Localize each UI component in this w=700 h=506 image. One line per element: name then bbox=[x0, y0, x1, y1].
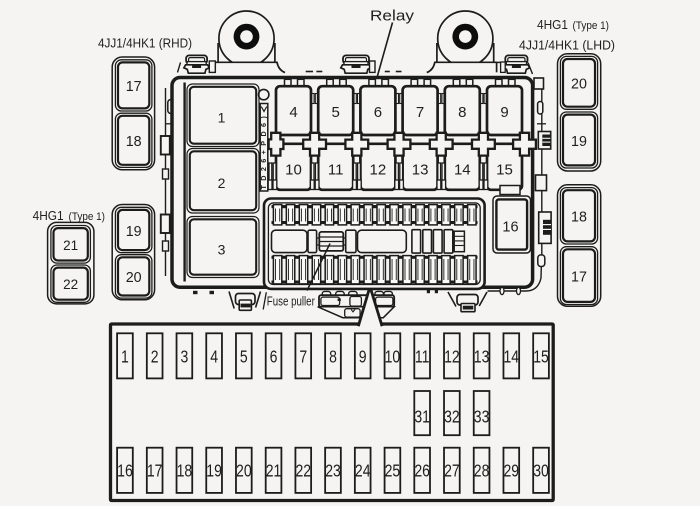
svg-text:13: 13 bbox=[474, 347, 490, 367]
svg-text:12: 12 bbox=[370, 161, 387, 178]
svg-text:14: 14 bbox=[504, 347, 520, 367]
svg-text:16: 16 bbox=[117, 461, 133, 481]
svg-text:15: 15 bbox=[496, 161, 513, 178]
svg-text:4JJ1/4HK1 (RHD): 4JJ1/4HK1 (RHD) bbox=[98, 36, 192, 51]
svg-text:3: 3 bbox=[218, 241, 226, 257]
svg-text:15: 15 bbox=[533, 347, 549, 367]
svg-text:5: 5 bbox=[332, 104, 340, 121]
svg-text:28: 28 bbox=[474, 461, 490, 481]
svg-text:9: 9 bbox=[500, 104, 508, 121]
svg-text:19: 19 bbox=[126, 224, 142, 240]
svg-text:20: 20 bbox=[236, 461, 252, 481]
svg-text:25: 25 bbox=[385, 461, 401, 481]
svg-text:11: 11 bbox=[328, 161, 344, 178]
svg-text:22: 22 bbox=[295, 461, 311, 481]
svg-text:2: 2 bbox=[151, 347, 159, 367]
svg-text:9: 9 bbox=[359, 347, 367, 367]
svg-text:11: 11 bbox=[415, 347, 430, 367]
svg-text:31: 31 bbox=[414, 407, 430, 427]
svg-text:2: 2 bbox=[218, 175, 226, 191]
svg-text:19: 19 bbox=[571, 134, 587, 150]
svg-text:17: 17 bbox=[571, 269, 587, 285]
svg-text:12: 12 bbox=[444, 347, 460, 367]
svg-text:18: 18 bbox=[126, 134, 142, 150]
svg-text:14: 14 bbox=[454, 161, 471, 178]
svg-text:Relay: Relay bbox=[370, 9, 415, 25]
svg-text:26: 26 bbox=[414, 461, 430, 481]
svg-text:23: 23 bbox=[325, 461, 341, 481]
svg-text:8: 8 bbox=[458, 104, 466, 121]
svg-text:21: 21 bbox=[266, 461, 282, 481]
svg-text:4: 4 bbox=[289, 104, 297, 121]
svg-text:10: 10 bbox=[385, 347, 401, 367]
svg-text:19: 19 bbox=[206, 461, 222, 481]
svg-text:3: 3 bbox=[180, 347, 188, 367]
svg-text:20: 20 bbox=[126, 270, 142, 286]
svg-text:13: 13 bbox=[412, 161, 429, 178]
svg-text:24: 24 bbox=[355, 461, 371, 481]
svg-text:4JJ1/4HK1 (LHD): 4JJ1/4HK1 (LHD) bbox=[519, 38, 615, 53]
svg-text:20: 20 bbox=[571, 77, 587, 93]
svg-text:7: 7 bbox=[299, 347, 307, 367]
svg-text:5: 5 bbox=[240, 347, 248, 367]
svg-text:32: 32 bbox=[444, 407, 460, 427]
svg-text:8: 8 bbox=[329, 347, 337, 367]
svg-text:18: 18 bbox=[571, 210, 587, 226]
svg-text:6: 6 bbox=[270, 347, 278, 367]
svg-text:22: 22 bbox=[63, 277, 78, 292]
svg-text:21: 21 bbox=[63, 238, 78, 253]
svg-text:4: 4 bbox=[210, 347, 218, 367]
svg-text:1: 1 bbox=[218, 110, 226, 126]
svg-text:30: 30 bbox=[533, 461, 549, 481]
svg-text:1: 1 bbox=[121, 347, 129, 367]
svg-text:Fuse puller: Fuse puller bbox=[267, 294, 316, 308]
svg-text:7: 7 bbox=[416, 104, 424, 121]
svg-text:33: 33 bbox=[474, 407, 490, 427]
svg-text:27: 27 bbox=[444, 461, 460, 481]
svg-text:17: 17 bbox=[147, 461, 163, 481]
svg-text:TD26+PD6): TD26+PD6) bbox=[259, 112, 268, 190]
svg-text:(Type 1): (Type 1) bbox=[69, 211, 106, 223]
svg-text:16: 16 bbox=[502, 219, 518, 235]
svg-text:(Type 1): (Type 1) bbox=[573, 20, 610, 32]
svg-text:6: 6 bbox=[374, 104, 382, 121]
svg-text:4HG1: 4HG1 bbox=[33, 208, 64, 223]
svg-text:17: 17 bbox=[126, 79, 142, 95]
svg-text:4HG1: 4HG1 bbox=[537, 17, 568, 32]
svg-text:18: 18 bbox=[177, 461, 193, 481]
svg-text:29: 29 bbox=[504, 461, 520, 481]
svg-text:10: 10 bbox=[285, 161, 302, 178]
